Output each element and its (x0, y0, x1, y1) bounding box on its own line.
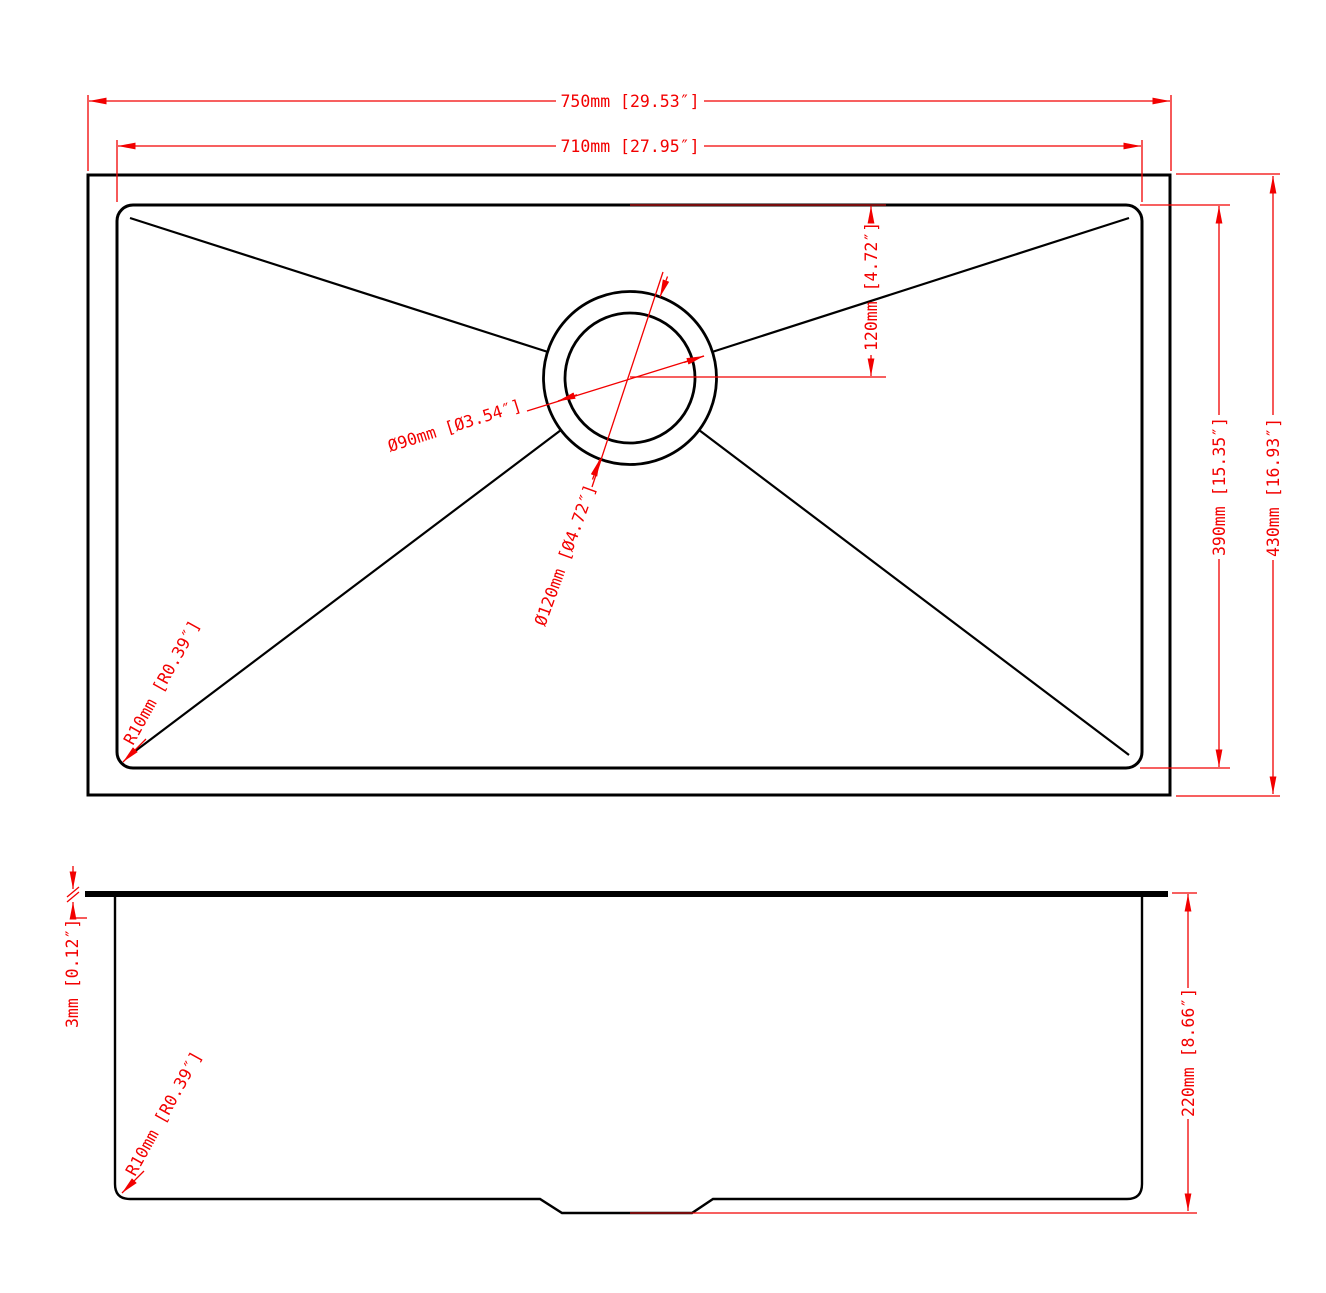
dim-outer-depth: 430mm [16.93″] (1176, 174, 1283, 796)
dim-label: 430mm [16.93″] (1264, 418, 1283, 557)
dim-rim-thickness: 3mm [0.12″] (63, 866, 87, 1028)
dim-label: 120mm [4.72″] (862, 222, 881, 351)
oblique-tick (67, 892, 79, 902)
dim-drain-offset: 120mm [4.72″] (630, 205, 886, 377)
basin-slope-line-bottom-right (699, 430, 1129, 755)
dim-inner-depth: 390mm [15.35″] (1140, 205, 1230, 768)
dim-label: 750mm [29.53″] (560, 92, 699, 111)
drain-inner-circle (565, 313, 695, 443)
dim-label: Ø120mm [Ø4.72″] (531, 482, 600, 629)
dim-inner-width: 710mm [27.95″] (117, 137, 1142, 202)
sink-technical-drawing: 750mm [29.53″] 710mm [27.95″] 120mm [4.7… (0, 0, 1326, 1293)
dim-corner-radius-side: R10mm [R0.39″] (122, 1048, 206, 1193)
dim-label: 220mm [8.66″] (1179, 988, 1198, 1117)
dim-outer-width: 750mm [29.53″] (88, 92, 1171, 171)
technical-drawing-page: 750mm [29.53″] 710mm [27.95″] 120mm [4.7… (0, 0, 1326, 1293)
bowl-profile-outline (115, 897, 1142, 1213)
dim-label: R10mm [R0.39″] (122, 1048, 206, 1179)
side-view (85, 891, 1168, 1213)
diameter-line (592, 272, 663, 487)
basin-slope-line-bottom-left (130, 430, 561, 755)
dim-bowl-depth: 220mm [8.66″] (630, 893, 1198, 1213)
dim-label: Ø90mm [Ø3.54″] (385, 396, 523, 456)
dim-label: 3mm [0.12″] (63, 919, 82, 1028)
dim-corner-radius-top: R10mm [R0.39″] (120, 617, 204, 762)
counter-rim-plate (85, 891, 1168, 897)
dim-label: 390mm [15.35″] (1210, 417, 1229, 556)
basin-slope-line-top-right (712, 218, 1129, 352)
drain-outer-circle (544, 292, 717, 465)
diameter-arrow (593, 459, 601, 480)
top-view (88, 175, 1170, 795)
sink-outer-rim-outline (88, 175, 1170, 795)
basin-slope-line-top-left (130, 218, 548, 352)
sink-basin-outline (117, 205, 1142, 768)
dim-label: 710mm [27.95″] (560, 137, 699, 156)
dim-drain-outer-diameter: Ø120mm [Ø4.72″] (531, 272, 668, 628)
dim-label: R10mm [R0.39″] (120, 617, 204, 748)
diameter-line (527, 356, 704, 411)
